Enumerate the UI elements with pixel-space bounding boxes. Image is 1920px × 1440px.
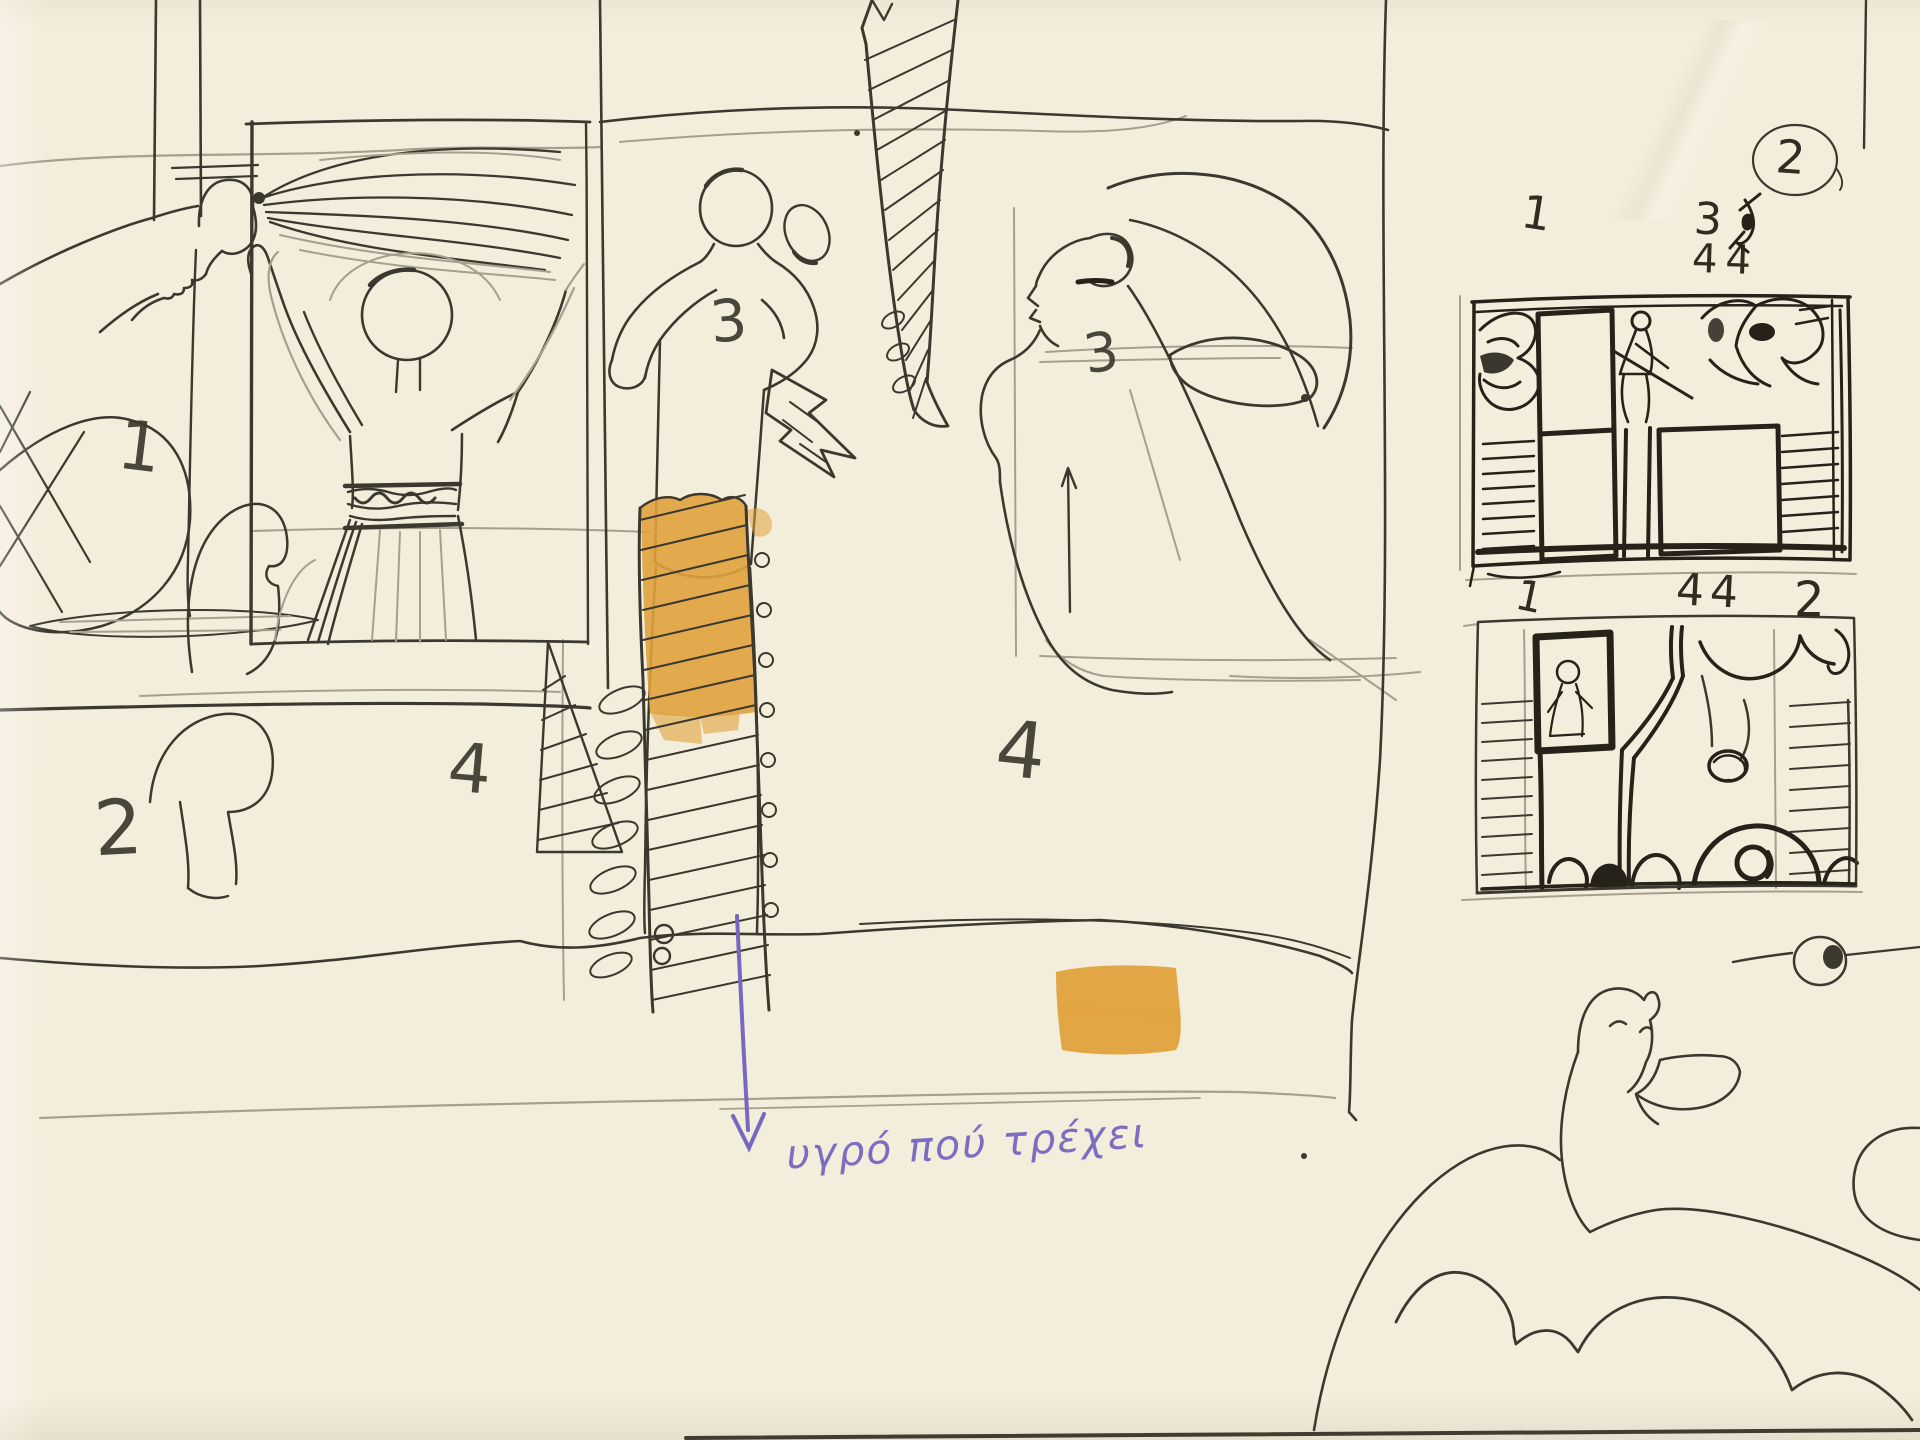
thumb-bottom-label-2: 2 bbox=[1794, 576, 1825, 624]
scene-1-number: 1 bbox=[114, 412, 165, 485]
figure-1-sketch bbox=[0, 165, 265, 616]
flash-arrow-shape bbox=[766, 370, 855, 477]
sketchbook-page: 1 2 3 3 4 4 2 1 3 44 1 44 2 υγρό πού τρέ… bbox=[0, 0, 1920, 1440]
ghost-and-hill-sketch bbox=[1314, 988, 1920, 1430]
scene-4-number-right: 4 bbox=[992, 710, 1050, 793]
scene-3-number-right: 3 bbox=[1080, 324, 1122, 382]
sheet-number-badge: 2 bbox=[1774, 133, 1806, 181]
purple-annotation-arrow bbox=[733, 916, 764, 1148]
hatched-ribbon bbox=[862, 0, 958, 426]
winged-figure-sketch bbox=[981, 173, 1351, 693]
thumbnail-top-storyboard bbox=[1460, 296, 1856, 586]
thumb-bottom-label-44: 44 bbox=[1675, 568, 1745, 615]
hatched-triangle bbox=[537, 642, 622, 852]
left-rock-and-mushroom-shapes bbox=[0, 392, 318, 898]
scene-4-number-left: 4 bbox=[445, 734, 494, 806]
panel-divider-lines bbox=[0, 0, 1920, 1438]
thumbnail-bottom-storyboard bbox=[1462, 616, 1862, 900]
spoon-pin-doodle bbox=[1733, 937, 1920, 985]
scene-2-number: 2 bbox=[92, 789, 144, 867]
thumb-top-label-44: 44 bbox=[1691, 239, 1759, 281]
framed-dancer-panel bbox=[246, 120, 590, 644]
scene-3-number-center: 3 bbox=[708, 291, 750, 352]
sketch-drawing bbox=[0, 0, 1920, 1440]
